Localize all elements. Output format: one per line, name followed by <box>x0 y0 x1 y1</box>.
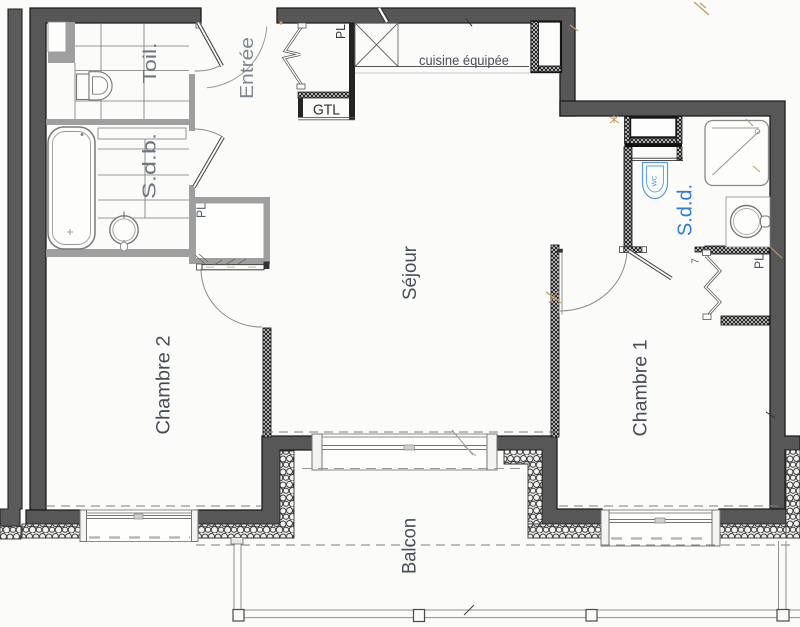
svg-text:cuisine équipée: cuisine équipée <box>419 53 509 68</box>
svg-text:Entrée: Entrée <box>237 37 257 99</box>
svg-text:Chambre 1: Chambre 1 <box>630 340 652 437</box>
svg-text:7: 7 <box>691 258 702 264</box>
svg-text:Balcon: Balcon <box>399 518 421 574</box>
svg-text:S.d.d.: S.d.d. <box>675 184 697 236</box>
svg-text:PL: PL <box>334 24 348 39</box>
svg-text:Chambre 2: Chambre 2 <box>153 336 175 435</box>
svg-text:PL: PL <box>195 203 209 218</box>
svg-text:Séjour: Séjour <box>399 246 421 300</box>
svg-text:Toil.: Toil. <box>140 43 160 84</box>
svg-text:PL: PL <box>753 254 767 269</box>
svg-text:S.d.b.: S.d.b. <box>140 133 160 199</box>
svg-text:WC: WC <box>652 175 659 186</box>
svg-text:GTL: GTL <box>313 102 340 119</box>
